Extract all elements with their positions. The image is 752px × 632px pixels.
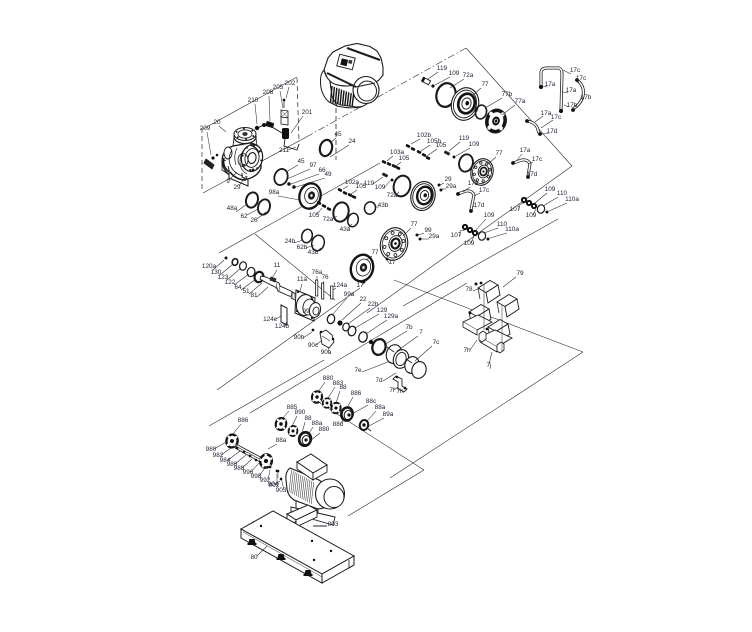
svg-text:7d: 7d	[375, 377, 383, 384]
svg-text:119: 119	[437, 65, 448, 72]
svg-text:17b: 17b	[581, 94, 592, 101]
svg-text:88a: 88a	[375, 404, 386, 411]
svg-text:17c: 17c	[551, 114, 562, 121]
svg-text:45: 45	[297, 158, 305, 165]
svg-text:209: 209	[200, 125, 211, 132]
svg-text:109: 109	[449, 70, 460, 77]
svg-text:7h: 7h	[463, 347, 471, 354]
svg-text:129a: 129a	[384, 313, 399, 320]
svg-text:205: 205	[273, 84, 284, 91]
svg-text:124c: 124c	[263, 316, 278, 323]
svg-text:119: 119	[364, 180, 375, 187]
svg-text:49: 49	[324, 171, 332, 178]
svg-text:109: 109	[545, 186, 556, 193]
svg-text:7f: 7f	[389, 387, 395, 394]
svg-text:17c: 17c	[576, 75, 587, 82]
svg-text:80: 80	[250, 554, 258, 561]
svg-text:79: 79	[516, 270, 524, 277]
svg-text:886: 886	[351, 390, 362, 397]
svg-text:886: 886	[238, 417, 249, 424]
svg-text:72a: 72a	[387, 192, 398, 199]
svg-text:98a: 98a	[269, 189, 280, 196]
svg-text:211: 211	[279, 147, 290, 154]
svg-text:7e: 7e	[354, 367, 362, 374]
svg-text:77: 77	[481, 81, 489, 88]
svg-text:124b: 124b	[275, 323, 290, 330]
svg-text:17a: 17a	[520, 147, 531, 154]
svg-text:109: 109	[464, 240, 475, 247]
svg-text:20: 20	[213, 119, 221, 126]
svg-text:90b: 90b	[294, 334, 305, 341]
svg-text:88a: 88a	[276, 437, 287, 444]
svg-text:7h: 7h	[396, 388, 404, 395]
svg-text:48a: 48a	[227, 205, 238, 212]
svg-text:90a: 90a	[321, 349, 332, 356]
svg-text:76: 76	[321, 274, 329, 281]
svg-text:210: 210	[248, 97, 259, 104]
svg-text:81: 81	[250, 292, 258, 299]
svg-text:880: 880	[319, 426, 330, 433]
svg-text:7b: 7b	[405, 324, 413, 331]
svg-text:124a: 124a	[333, 282, 348, 289]
svg-text:904: 904	[268, 481, 279, 488]
svg-text:45: 45	[334, 131, 342, 138]
svg-text:105: 105	[436, 142, 447, 149]
svg-text:29a: 29a	[446, 183, 457, 190]
svg-text:17: 17	[356, 282, 364, 289]
svg-text:110a: 110a	[565, 196, 579, 203]
svg-text:72a: 72a	[323, 216, 334, 223]
svg-text:88d: 88d	[333, 421, 344, 428]
svg-text:64: 64	[234, 284, 242, 291]
svg-text:202: 202	[285, 80, 296, 87]
svg-text:17: 17	[388, 259, 396, 266]
svg-text:109: 109	[484, 212, 495, 219]
svg-text:62b: 62b	[297, 244, 308, 251]
svg-text:77b: 77b	[502, 91, 513, 98]
svg-text:29: 29	[444, 176, 452, 183]
svg-text:201: 201	[302, 109, 313, 116]
svg-text:62: 62	[240, 213, 248, 220]
svg-text:72a: 72a	[463, 72, 474, 79]
svg-text:89a: 89a	[383, 411, 394, 418]
svg-text:17d: 17d	[527, 171, 538, 178]
svg-text:17d: 17d	[474, 202, 485, 209]
svg-text:29a: 29a	[429, 233, 440, 240]
svg-text:109: 109	[526, 212, 537, 219]
svg-text:88: 88	[339, 384, 347, 391]
svg-text:77a: 77a	[515, 98, 526, 105]
svg-text:51: 51	[242, 288, 250, 295]
svg-text:97: 97	[309, 162, 317, 169]
svg-text:90c: 90c	[308, 342, 319, 349]
svg-text:78: 78	[465, 286, 473, 293]
svg-text:11a: 11a	[297, 276, 308, 283]
svg-text:77: 77	[371, 249, 379, 256]
svg-text:109: 109	[469, 141, 480, 148]
svg-text:26: 26	[250, 217, 258, 224]
svg-text:17c: 17c	[479, 187, 490, 194]
svg-text:7: 7	[419, 329, 423, 336]
svg-text:77: 77	[410, 221, 418, 228]
svg-text:43b: 43b	[308, 249, 319, 256]
svg-text:110a: 110a	[505, 226, 519, 233]
svg-text:11: 11	[274, 262, 281, 269]
svg-text:22: 22	[359, 296, 367, 303]
svg-text:17b: 17b	[567, 102, 578, 109]
svg-text:803: 803	[328, 521, 339, 528]
svg-text:17c: 17c	[570, 67, 581, 74]
svg-text:99a: 99a	[344, 291, 355, 298]
svg-text:43b: 43b	[378, 202, 389, 209]
svg-text:17d: 17d	[547, 128, 558, 135]
svg-text:105: 105	[399, 155, 410, 162]
svg-text:99: 99	[302, 308, 310, 315]
svg-text:24b: 24b	[285, 238, 296, 245]
svg-text:7c: 7c	[433, 339, 441, 346]
svg-text:17c: 17c	[532, 156, 543, 163]
svg-text:24: 24	[348, 138, 356, 145]
svg-text:77: 77	[495, 150, 503, 157]
svg-text:17a: 17a	[468, 180, 479, 187]
svg-text:903: 903	[276, 487, 287, 494]
